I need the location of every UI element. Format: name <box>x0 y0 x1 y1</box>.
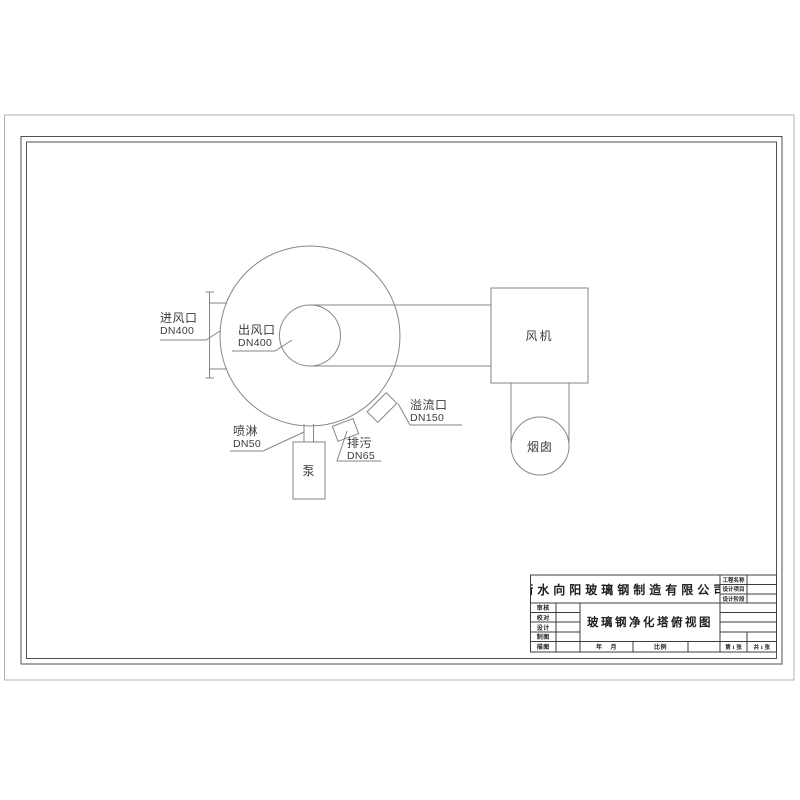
overflow-name: 溢流口 <box>410 399 448 412</box>
drawing-sheet: 进风口 DN400 出风口 DN400 喷淋 DN50 排污 DN65 溢流口 … <box>0 0 800 800</box>
spray-size: DN50 <box>233 438 261 450</box>
field-scale: 比例 <box>633 642 688 652</box>
field-design-item: 设计项目 <box>720 585 747 595</box>
field-review: 审核 <box>531 603 557 613</box>
fan-label: 风机 <box>491 288 588 383</box>
drain-name: 排污 <box>347 437 375 450</box>
label-air-inlet: 进风口 DN400 <box>160 312 198 337</box>
field-design: 设计 <box>531 622 557 632</box>
field-trace: 描图 <box>531 642 557 652</box>
spray-name: 喷淋 <box>233 425 261 438</box>
overflow-size: DN150 <box>410 412 448 424</box>
field-draft: 制图 <box>531 632 557 642</box>
air-outlet-name: 出风口 <box>238 324 276 337</box>
air-inlet-name: 进风口 <box>160 312 198 325</box>
label-air-outlet: 出风口 DN400 <box>238 324 276 349</box>
company-name: 衡水向阳玻璃钢制造有限公司 <box>531 575 721 603</box>
field-sheet-no: 第 1 张 <box>720 642 747 652</box>
chimney-label: 烟囱 <box>511 417 569 475</box>
field-project-name: 工程名称 <box>720 575 747 585</box>
air-inlet-size: DN400 <box>160 325 198 337</box>
field-proof: 校对 <box>531 613 557 623</box>
air-outlet-size: DN400 <box>238 337 276 349</box>
label-drain: 排污 DN65 <box>347 437 375 462</box>
drain-size: DN65 <box>347 450 375 462</box>
outlet-circle <box>280 305 341 366</box>
field-design-stage: 设计阶段 <box>720 594 747 603</box>
overflow-nozzle <box>367 393 397 423</box>
cad-linework <box>0 0 800 800</box>
pump-label: 泵 <box>293 442 325 499</box>
label-spray: 喷淋 DN50 <box>233 425 261 450</box>
field-date: 年 月 <box>580 642 633 652</box>
label-overflow: 溢流口 DN150 <box>410 399 448 424</box>
field-sheet-total: 共 1 张 <box>747 642 777 652</box>
drawing-title: 玻璃钢净化塔俯视图 <box>580 603 720 642</box>
